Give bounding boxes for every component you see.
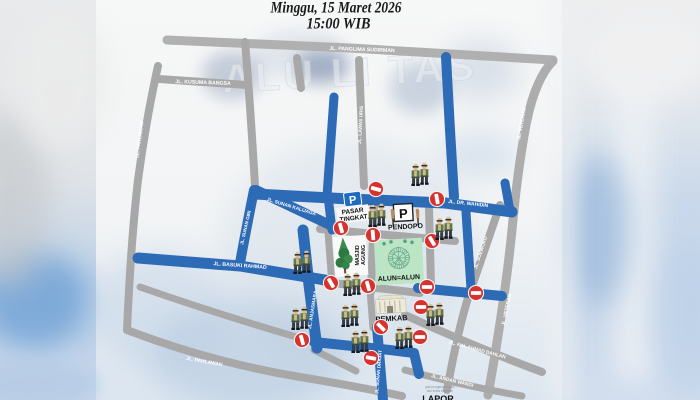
svg-text:lalu lintas kegiatan: lalu lintas kegiatan — [427, 389, 453, 393]
svg-text:P: P — [348, 194, 357, 207]
svg-text:15:00 WIB: 15:00 WIB — [307, 16, 371, 33]
svg-text:LAPOR: LAPOR — [422, 394, 454, 400]
svg-text:P: P — [399, 206, 409, 221]
svg-text:AGUNG: AGUNG — [361, 245, 367, 265]
svg-text:Minggu, 15 Maret 2026: Minggu, 15 Maret 2026 — [270, 0, 402, 17]
